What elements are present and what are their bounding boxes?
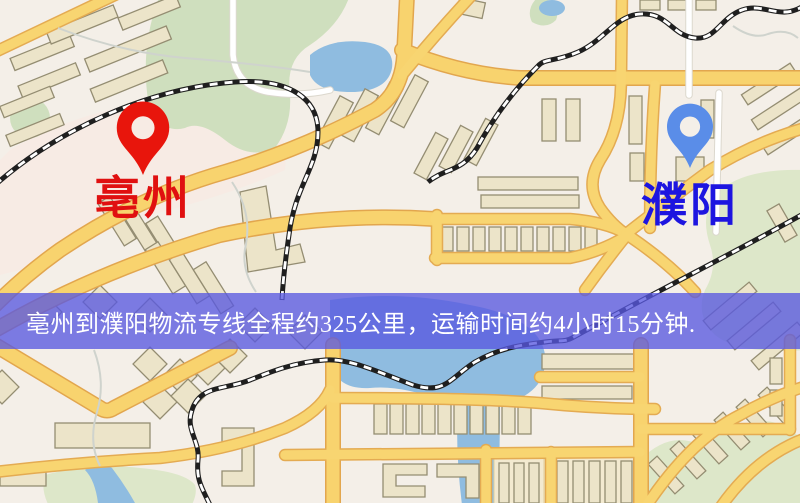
logistics-route-map: 亳州 濮阳 亳州到濮阳物流专线全程约325公里，运输时间约4小时15分钟.: [0, 0, 800, 503]
route-info-banner: 亳州到濮阳物流专线全程约325公里，运输时间约4小时15分钟.: [0, 293, 800, 349]
destination-city-label: 濮阳: [641, 180, 739, 231]
origin-city-label: 亳州: [94, 173, 192, 224]
route-info-text: 亳州到濮阳物流专线全程约325公里，运输时间约4小时15分钟.: [0, 304, 696, 339]
pond: [310, 41, 392, 92]
map-canvas[interactable]: 亳州 濮阳: [0, 0, 800, 503]
